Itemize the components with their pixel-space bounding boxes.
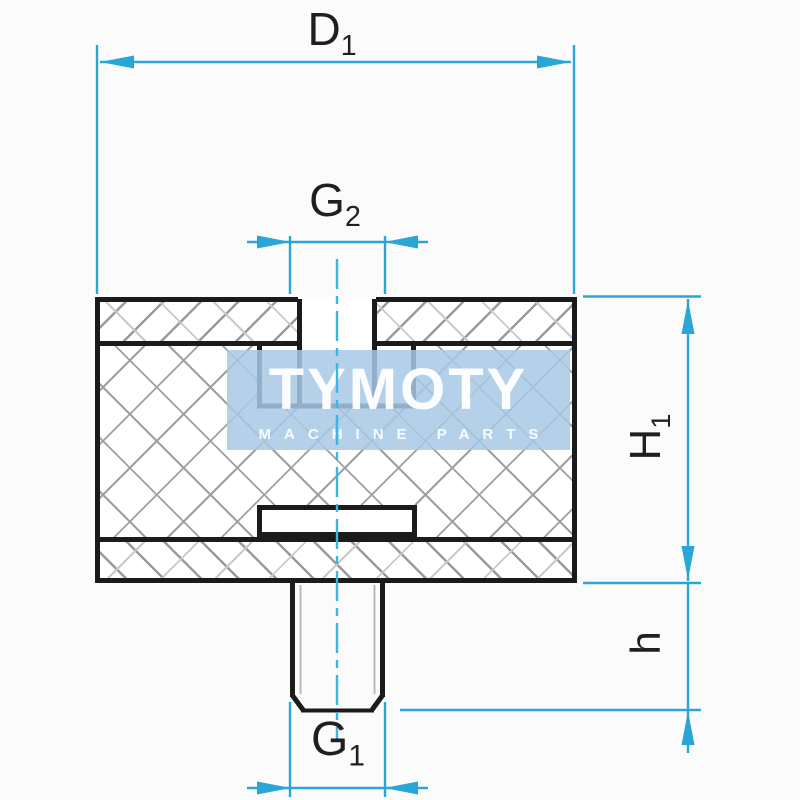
g2-arrow-right [384,236,418,249]
stud-thread-lines [301,585,375,694]
watermark-brand-text: TYMOTY [269,361,529,419]
g1-arrow-left [257,782,291,795]
technical-drawing-canvas: TYMOTY MACHINE PARTS [0,0,800,800]
g2-arrow-left [257,236,291,249]
watermark-subtitle-text: MACHINE PARTS [246,427,552,442]
h1-arrow-top [682,300,695,334]
label-g1: G1 [311,716,365,771]
stud-chamfer-right [372,696,383,711]
embedded-washer [257,505,417,537]
label-d1: D1 [307,6,356,61]
watermark-band: TYMOTY MACHINE PARTS [227,350,570,450]
d1-arrow-left [100,56,134,69]
thread-hole-opening [298,297,376,345]
stud-chamfer-left [293,696,304,711]
h1-arrow-bottom [682,546,695,580]
d1-arrow-right [537,56,571,69]
h-arrow-bottom [682,711,695,745]
bottom-metal-plate-hatch [95,539,577,583]
label-g2: G2 [309,177,361,232]
g1-arrow-right [384,782,418,795]
label-h: h [625,631,667,654]
label-h1: H1 [624,414,674,461]
